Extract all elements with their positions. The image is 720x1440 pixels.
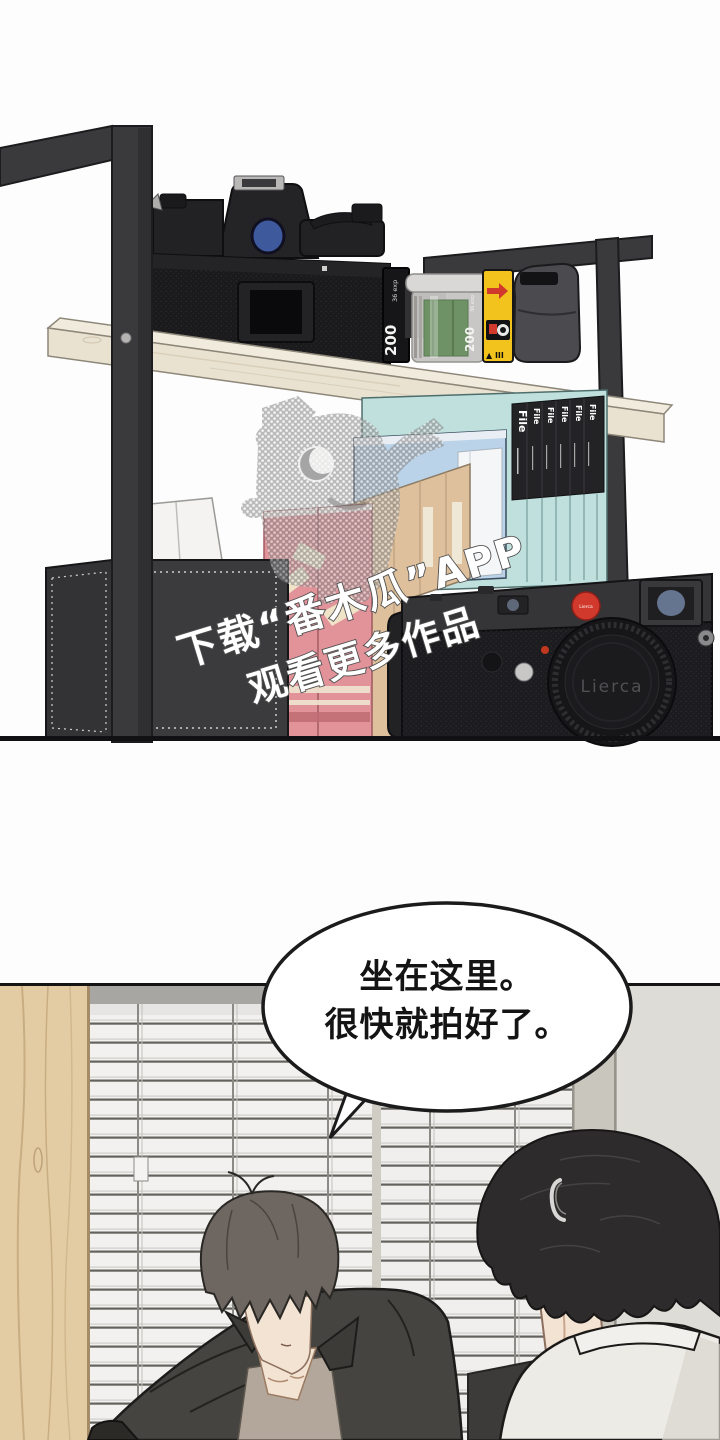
hair-gray xyxy=(201,1191,338,1322)
post-screw xyxy=(121,333,131,343)
film-canister: 200 36 exp xyxy=(406,274,490,362)
disposable-speed-mark: ▲ III xyxy=(486,351,504,360)
character-foreground xyxy=(477,1130,720,1440)
canister-cap xyxy=(406,274,490,292)
wood-plank xyxy=(0,986,90,1440)
film-box: 200 36 exp xyxy=(382,268,409,362)
bubble-text-line1: 坐在这里。 xyxy=(360,957,535,997)
blind-cord-toggle xyxy=(134,1157,148,1181)
lens-brand-text: Lierca xyxy=(580,677,643,697)
file-spine-label: File xyxy=(588,404,597,421)
comic-artwork: 200 36 exp 200 36 exp ▲ III xyxy=(0,0,720,1440)
plank-edge xyxy=(87,986,90,1440)
slr-film-window xyxy=(250,290,302,334)
top-panel-shelf: 200 36 exp 200 36 exp ▲ III xyxy=(0,126,720,746)
file-spine-label: File xyxy=(516,410,529,433)
lierca-shutter xyxy=(478,586,494,594)
slr-viewfinder xyxy=(252,219,284,253)
file-spine-label: File xyxy=(560,406,569,423)
comic-page: 200 36 exp 200 36 exp ▲ III xyxy=(0,0,720,1440)
viewfinder-glass xyxy=(657,590,685,616)
shelf-base-line xyxy=(0,736,720,741)
camera-pouch xyxy=(514,264,580,362)
silver-button xyxy=(515,663,533,681)
slr-marking xyxy=(322,266,327,271)
shelf-frame-top-bar-left xyxy=(0,126,112,186)
file-spine-label: File xyxy=(546,407,555,424)
canister-speed: 200 xyxy=(463,327,477,352)
slr-dial xyxy=(352,204,382,222)
file-spine-label: File xyxy=(574,405,583,422)
canister-exposures: 36 exp xyxy=(470,295,476,312)
file-spine-label: File xyxy=(532,408,541,425)
post-shade xyxy=(138,128,151,740)
lens-index-dot xyxy=(541,646,549,654)
hair-black xyxy=(477,1130,720,1323)
bubble-text-line2: 很快就拍好了。 xyxy=(325,1005,570,1045)
tissue-box-side xyxy=(46,560,112,740)
film-box-speed: 200 xyxy=(382,325,400,356)
disposable-camera: ▲ III xyxy=(483,270,513,362)
pouch-slot xyxy=(520,272,558,285)
film-box-exposures: 36 exp xyxy=(391,280,399,302)
slr-rewind-knob xyxy=(160,194,186,208)
bottom-panel: 坐在这里。 很快就拍好了。 xyxy=(0,903,720,1440)
lierca-camera: Lierca Lierca xyxy=(388,574,714,746)
slr-hot-shoe-slot xyxy=(242,179,276,187)
lens-release xyxy=(482,652,502,672)
red-dot-text: Lierca xyxy=(579,604,593,610)
